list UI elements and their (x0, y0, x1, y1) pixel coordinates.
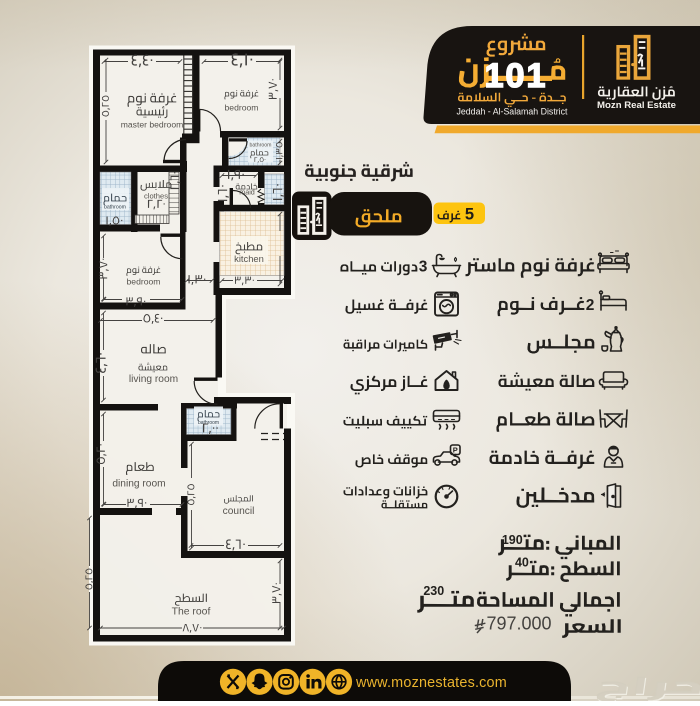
svg-text:101: 101 (485, 57, 548, 95)
svg-text:bedroom: bedroom (127, 277, 161, 287)
svg-text:3: 3 (419, 259, 428, 276)
svg-text:230: 230 (423, 584, 444, 598)
svg-text:bathroom: bathroom (104, 205, 126, 211)
svg-text:The roof: The roof (172, 607, 211, 618)
svg-text:clothes: clothes (144, 192, 168, 201)
svg-text:2: 2 (586, 297, 595, 314)
svg-text:bedroom: bedroom (225, 103, 259, 113)
svg-text:797.000: 797.000 (486, 614, 551, 634)
svg-text:dining room: dining room (112, 479, 165, 490)
svg-text:190: 190 (502, 533, 523, 547)
svg-text:bathroom: bathroom (250, 143, 272, 149)
svg-text:P: P (453, 445, 458, 454)
svg-text:Mozn Real Estate: Mozn Real Estate (597, 100, 676, 111)
svg-text:master bedroom: master bedroom (121, 120, 184, 130)
svg-text:council: council (223, 506, 255, 517)
svg-text:living room: living room (129, 374, 178, 385)
svg-text:Jeddah - Al-Salamah District: Jeddah - Al-Salamah District (457, 107, 569, 117)
svg-text:bathroom: bathroom (198, 420, 219, 426)
svg-text:maid: maid (239, 188, 255, 197)
svg-text:5: 5 (465, 206, 474, 224)
svg-text:40: 40 (515, 556, 529, 570)
svg-text:kitchen: kitchen (234, 253, 264, 264)
svg-text:www.moznestates.com: www.moznestates.com (355, 675, 507, 691)
